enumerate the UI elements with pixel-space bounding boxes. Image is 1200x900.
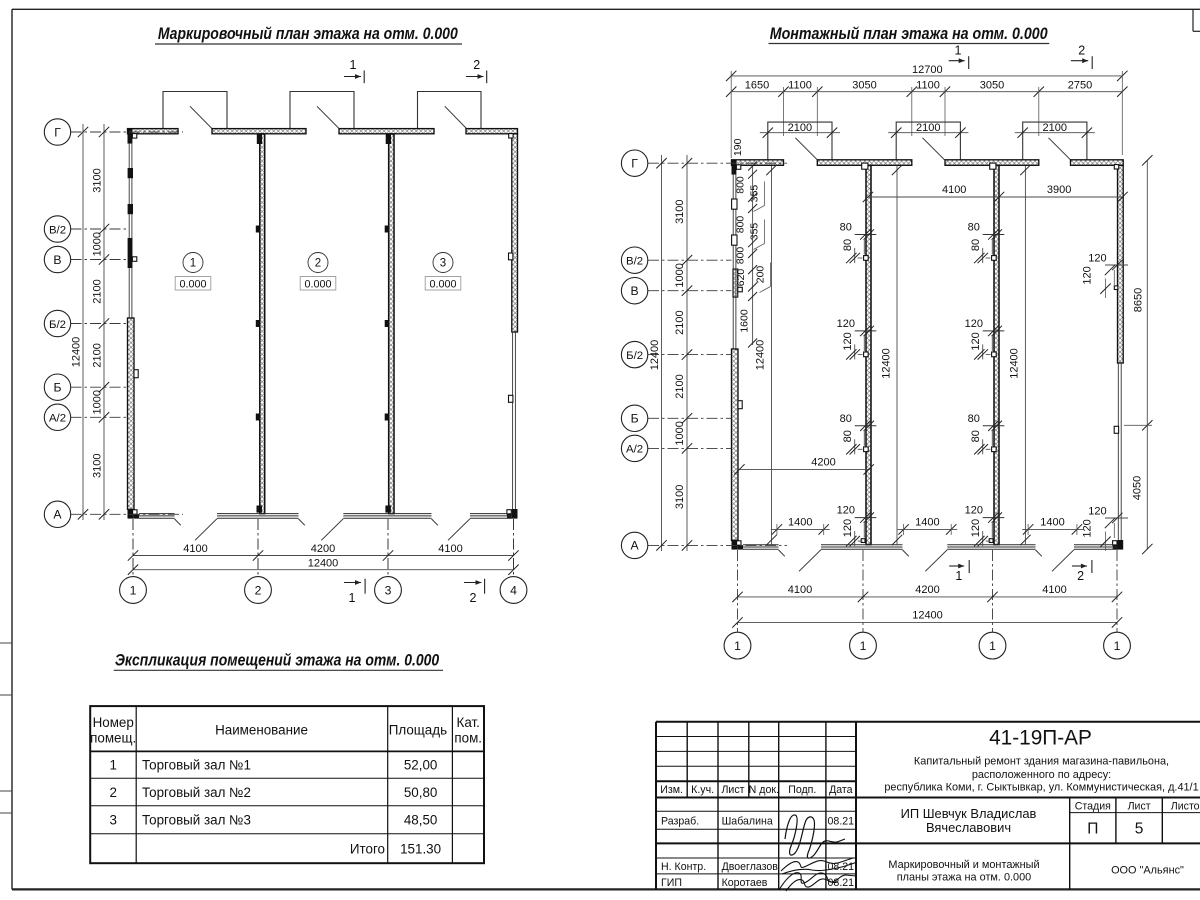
svg-text:Г: Г <box>54 125 61 139</box>
svg-text:Торговый зал №3: Торговый зал №3 <box>142 813 251 828</box>
svg-text:5: 5 <box>1135 821 1144 838</box>
svg-text:120: 120 <box>837 505 855 517</box>
svg-text:Маркировочный план этажа на от: Маркировочный план этажа на отм. 0.000 <box>158 25 458 44</box>
svg-text:1: 1 <box>190 258 196 270</box>
svg-text:120: 120 <box>842 332 854 350</box>
svg-text:1: 1 <box>860 639 867 653</box>
svg-text:3: 3 <box>440 258 446 270</box>
svg-text:8650: 8650 <box>1132 288 1144 312</box>
svg-text:республика Коми, г. Сыктывкар,: республика Коми, г. Сыктывкар, ул. Комму… <box>884 781 1198 793</box>
svg-text:Номер: Номер <box>93 715 134 730</box>
svg-text:Н. Контр.: Н. Контр. <box>661 861 706 873</box>
svg-text:4: 4 <box>510 584 517 598</box>
svg-text:80: 80 <box>970 239 982 251</box>
svg-text:41-19П-АР: 41-19П-АР <box>989 726 1092 749</box>
svg-text:355: 355 <box>749 185 761 203</box>
svg-text:Б/2: Б/2 <box>626 350 643 362</box>
svg-text:1: 1 <box>734 639 741 653</box>
svg-text:200: 200 <box>755 266 767 284</box>
svg-text:3: 3 <box>385 584 392 598</box>
svg-text:4200: 4200 <box>811 457 835 469</box>
svg-text:2: 2 <box>473 58 480 72</box>
svg-text:Б: Б <box>54 381 62 395</box>
svg-text:4100: 4100 <box>942 184 966 196</box>
svg-text:12400: 12400 <box>71 337 83 368</box>
svg-text:Стадия: Стадия <box>1075 800 1111 812</box>
svg-text:120: 120 <box>837 318 855 330</box>
svg-text:3100: 3100 <box>92 454 104 478</box>
svg-text:80: 80 <box>842 239 854 251</box>
svg-text:А/2: А/2 <box>626 444 643 456</box>
svg-text:планы этажа на отм. 0.000: планы этажа на отм. 0.000 <box>897 872 1031 884</box>
svg-text:Лист: Лист <box>721 784 744 796</box>
svg-text:А: А <box>631 539 640 553</box>
svg-text:Коротаев: Коротаев <box>722 877 768 889</box>
svg-text:2: 2 <box>255 584 262 598</box>
svg-text:12400: 12400 <box>308 558 339 570</box>
svg-text:3050: 3050 <box>980 79 1004 91</box>
svg-text:4050: 4050 <box>1132 476 1144 500</box>
svg-text:2100: 2100 <box>1043 122 1067 134</box>
svg-text:Итого: Итого <box>350 842 385 857</box>
svg-text:Б: Б <box>631 412 639 426</box>
svg-text:120: 120 <box>1081 519 1093 537</box>
svg-text:Шабалина: Шабалина <box>722 815 773 827</box>
svg-text:1: 1 <box>109 758 116 773</box>
svg-text:4200: 4200 <box>915 584 939 596</box>
svg-text:120: 120 <box>970 332 982 350</box>
svg-text:355: 355 <box>749 223 761 241</box>
svg-text:1100: 1100 <box>788 79 812 91</box>
svg-text:2100: 2100 <box>674 310 686 334</box>
svg-text:1: 1 <box>955 44 962 58</box>
svg-text:3100: 3100 <box>674 485 686 509</box>
svg-text:Изм.: Изм. <box>660 784 683 796</box>
svg-text:120: 120 <box>1081 266 1093 284</box>
svg-text:2100: 2100 <box>674 374 686 398</box>
svg-text:Капитальный ремонт здания мага: Капитальный ремонт здания магазина-павил… <box>914 756 1169 768</box>
svg-text:В/2: В/2 <box>49 224 66 236</box>
svg-text:1: 1 <box>130 584 137 598</box>
svg-text:2750: 2750 <box>1068 79 1092 91</box>
svg-text:1650: 1650 <box>745 79 769 91</box>
svg-text:08.21: 08.21 <box>828 877 855 889</box>
svg-text:1: 1 <box>349 591 356 605</box>
svg-text:ИП Шевчук Владислав: ИП Шевчук Владислав <box>901 806 1037 821</box>
svg-text:120: 120 <box>1088 506 1106 518</box>
svg-text:Вячеславович: Вячеславович <box>926 820 1011 835</box>
svg-text:12400: 12400 <box>649 340 661 371</box>
svg-text:3900: 3900 <box>1047 184 1071 196</box>
svg-text:А/2: А/2 <box>49 413 66 425</box>
svg-text:Экспликация помещений этажа на: Экспликация помещений этажа на отм. 0.00… <box>115 651 440 670</box>
svg-text:Торговый зал №2: Торговый зал №2 <box>142 785 251 800</box>
svg-text:ГИП: ГИП <box>661 877 682 889</box>
svg-text:1: 1 <box>1114 639 1121 653</box>
svg-text:80: 80 <box>968 222 980 234</box>
svg-text:0.000: 0.000 <box>179 279 206 291</box>
svg-text:80: 80 <box>970 430 982 442</box>
svg-text:3050: 3050 <box>852 79 876 91</box>
svg-text:2100: 2100 <box>92 343 104 367</box>
svg-text:расположенного по адресу:: расположенного по адресу: <box>972 769 1111 781</box>
svg-text:1400: 1400 <box>1040 517 1064 529</box>
svg-text:3100: 3100 <box>92 168 104 192</box>
svg-text:80: 80 <box>842 430 854 442</box>
svg-text:120: 120 <box>965 318 983 330</box>
svg-text:3: 3 <box>109 813 116 828</box>
svg-text:Лист: Лист <box>1128 800 1151 812</box>
svg-text:2: 2 <box>109 785 116 800</box>
svg-text:4100: 4100 <box>183 543 207 555</box>
svg-text:1000: 1000 <box>674 421 686 445</box>
svg-text:80: 80 <box>968 413 980 425</box>
svg-text:К.уч.: К.уч. <box>691 784 714 796</box>
svg-text:1000: 1000 <box>92 390 104 414</box>
svg-text:800: 800 <box>735 216 747 234</box>
svg-text:4200: 4200 <box>311 543 335 555</box>
svg-text:620: 620 <box>735 269 747 287</box>
svg-text:Площадь: Площадь <box>389 723 447 738</box>
svg-text:1: 1 <box>350 58 357 72</box>
svg-text:80: 80 <box>840 413 852 425</box>
svg-text:ООО "Альянс": ООО "Альянс" <box>1111 865 1184 877</box>
svg-text:12400: 12400 <box>1009 348 1021 379</box>
svg-text:800: 800 <box>735 247 747 265</box>
svg-text:4100: 4100 <box>438 543 462 555</box>
svg-text:Разраб.: Разраб. <box>661 815 699 827</box>
svg-text:0.000: 0.000 <box>304 279 331 291</box>
svg-text:12700: 12700 <box>912 64 943 76</box>
svg-text:151.30: 151.30 <box>400 842 441 857</box>
svg-text:1600: 1600 <box>739 309 751 333</box>
svg-text:П: П <box>1087 821 1098 838</box>
svg-text:52,00: 52,00 <box>404 758 438 773</box>
svg-text:2100: 2100 <box>916 122 940 134</box>
svg-text:2: 2 <box>1077 569 1084 583</box>
svg-text:4100: 4100 <box>1042 584 1066 596</box>
svg-text:12400: 12400 <box>912 610 943 622</box>
svg-text:12400: 12400 <box>755 340 767 371</box>
svg-text:Г: Г <box>631 157 638 171</box>
svg-text:помещ.: помещ. <box>90 731 136 746</box>
svg-text:Монтажный план этажа на отм. 0: Монтажный план этажа на отм. 0.000 <box>770 25 1048 43</box>
svg-text:2100: 2100 <box>788 122 812 134</box>
svg-text:800: 800 <box>735 176 747 194</box>
svg-text:190: 190 <box>732 138 744 156</box>
svg-text:В: В <box>631 284 639 298</box>
svg-text:1000: 1000 <box>92 232 104 256</box>
svg-text:N док.: N док. <box>749 784 779 796</box>
svg-text:1: 1 <box>989 639 996 653</box>
svg-text:пом.: пом. <box>454 731 482 746</box>
svg-text:Дата: Дата <box>829 784 853 796</box>
svg-text:Наименование: Наименование <box>215 723 308 738</box>
svg-text:12400: 12400 <box>881 348 893 379</box>
svg-text:120: 120 <box>842 519 854 537</box>
svg-text:Маркировочный и монтажный: Маркировочный и монтажный <box>888 859 1039 871</box>
svg-text:120: 120 <box>965 505 983 517</box>
svg-text:Подп.: Подп. <box>788 784 816 796</box>
svg-text:08.21: 08.21 <box>828 815 855 827</box>
svg-text:48,50: 48,50 <box>404 813 438 828</box>
svg-text:А: А <box>53 508 62 522</box>
svg-text:0.000: 0.000 <box>429 279 456 291</box>
svg-text:2: 2 <box>470 591 477 605</box>
svg-text:80: 80 <box>840 222 852 234</box>
svg-text:2100: 2100 <box>92 279 104 303</box>
svg-text:1000: 1000 <box>674 263 686 287</box>
svg-text:4100: 4100 <box>788 584 812 596</box>
svg-text:1100: 1100 <box>916 79 940 91</box>
svg-text:1400: 1400 <box>788 517 812 529</box>
svg-text:В: В <box>53 253 61 267</box>
svg-text:Кат.: Кат. <box>457 715 480 730</box>
svg-text:Б/2: Б/2 <box>49 319 66 331</box>
svg-text:В/2: В/2 <box>626 256 643 268</box>
svg-text:Двоеглазов: Двоеглазов <box>722 861 779 873</box>
svg-text:2: 2 <box>1078 44 1085 58</box>
svg-text:120: 120 <box>970 519 982 537</box>
svg-text:50,80: 50,80 <box>404 785 438 800</box>
svg-text:Торговый зал №1: Торговый зал №1 <box>142 758 251 773</box>
svg-text:Листов: Листов <box>1171 800 1200 812</box>
svg-text:1400: 1400 <box>915 517 939 529</box>
svg-text:3100: 3100 <box>674 199 686 223</box>
svg-text:2: 2 <box>315 258 321 270</box>
svg-text:1: 1 <box>955 569 962 583</box>
svg-text:120: 120 <box>1088 253 1106 265</box>
